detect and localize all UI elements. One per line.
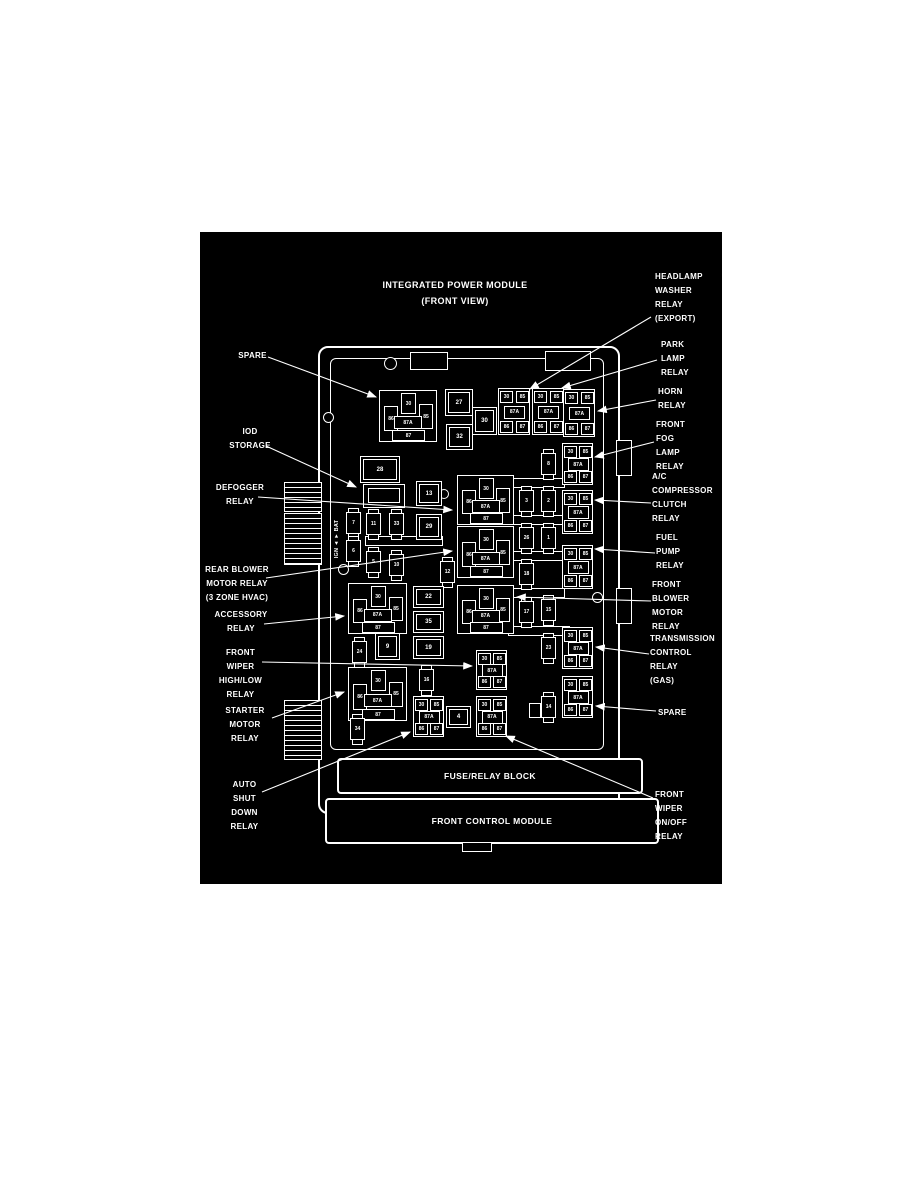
callout-labels: SPAREIODSTORAGEDEFOGGERRELAYREAR BLOWERM… <box>0 0 918 1188</box>
label-line: COMPRESSOR <box>652 484 713 498</box>
label-line: RELAY <box>655 298 703 312</box>
label-ac-compressor-clutch-relay: A/CCOMPRESSORCLUTCHRELAY <box>652 470 713 526</box>
label-line: WASHER <box>655 284 703 298</box>
label-line: MOTOR <box>652 606 689 620</box>
label-line: FOG <box>656 432 685 446</box>
label-line: MOTOR <box>200 718 290 732</box>
label-accessory-relay: ACCESSORYRELAY <box>195 608 287 636</box>
label-line: RELAY <box>202 820 287 834</box>
label-line: PARK <box>661 338 689 352</box>
label-line: A/C <box>652 470 713 484</box>
label-line: RELAY <box>661 366 689 380</box>
label-line: (GAS) <box>650 674 715 688</box>
label-line: FRONT <box>198 646 283 660</box>
label-line: IOD <box>205 425 295 439</box>
label-line: ON/OFF <box>655 816 687 830</box>
label-line: STARTER <box>200 704 290 718</box>
label-defogger-relay: DEFOGGERRELAY <box>195 481 285 509</box>
label-line: RELAY <box>658 399 686 413</box>
label-line: CLUTCH <box>652 498 713 512</box>
label-line: ACCESSORY <box>195 608 287 622</box>
label-line: (EXPORT) <box>655 312 703 326</box>
label-line: SPARE <box>205 349 300 363</box>
label-line: RELAY <box>195 495 285 509</box>
label-front-fog-lamp-relay: FRONTFOGLAMPRELAY <box>656 418 685 474</box>
label-line: SHUT <box>202 792 287 806</box>
label-line: DOWN <box>202 806 287 820</box>
label-front-blower-motor-relay: FRONTBLOWERMOTORRELAY <box>652 578 689 634</box>
label-line: FUEL <box>656 531 684 545</box>
label-line: RELAY <box>195 622 287 636</box>
label-line: WIPER <box>655 802 687 816</box>
label-line: LAMP <box>661 352 689 366</box>
label-line: FRONT <box>656 418 685 432</box>
label-line: FRONT <box>652 578 689 592</box>
label-fuel-pump-relay: FUELPUMPRELAY <box>656 531 684 573</box>
label-auto-shut-down-relay: AUTOSHUTDOWNRELAY <box>202 778 287 834</box>
label-line: RELAY <box>200 732 290 746</box>
label-park-lamp-relay: PARKLAMPRELAY <box>661 338 689 380</box>
label-starter-motor-relay: STARTERMOTORRELAY <box>200 704 290 746</box>
label-iod-storage: IODSTORAGE <box>205 425 295 453</box>
label-front-wiper-on-off-relay: FRONTWIPERON/OFFRELAY <box>655 788 687 844</box>
label-front-wiper-high-low-relay: FRONTWIPERHIGH/LOWRELAY <box>198 646 283 702</box>
label-line: HORN <box>658 385 686 399</box>
label-line: MOTOR RELAY <box>188 577 286 591</box>
label-line: LAMP <box>656 446 685 460</box>
label-line: PUMP <box>656 545 684 559</box>
label-line: REAR BLOWER <box>188 563 286 577</box>
label-line: STORAGE <box>205 439 295 453</box>
label-line: RELAY <box>652 512 713 526</box>
label-line: RELAY <box>655 830 687 844</box>
label-line: HEADLAMP <box>655 270 703 284</box>
page: INTEGRATED POWER MODULE (FRONT VIEW) <box>0 0 918 1188</box>
label-line: HIGH/LOW <box>198 674 283 688</box>
label-spare-right: SPARE <box>658 706 686 720</box>
label-transmission-control-relay: TRANSMISSIONCONTROLRELAY(GAS) <box>650 632 715 688</box>
label-rear-blower-motor-relay: REAR BLOWERMOTOR RELAY(3 ZONE HVAC) <box>188 563 286 605</box>
label-line: TRANSMISSION <box>650 632 715 646</box>
label-line: RELAY <box>656 559 684 573</box>
label-line: AUTO <box>202 778 287 792</box>
label-headlamp-washer-relay: HEADLAMPWASHERRELAY(EXPORT) <box>655 270 703 326</box>
label-line: (3 ZONE HVAC) <box>188 591 286 605</box>
label-line: SPARE <box>658 706 686 720</box>
label-line: DEFOGGER <box>195 481 285 495</box>
label-line: RELAY <box>650 660 715 674</box>
label-line: CONTROL <box>650 646 715 660</box>
label-line: FRONT <box>655 788 687 802</box>
label-horn-relay: HORNRELAY <box>658 385 686 413</box>
label-spare-left: SPARE <box>205 349 300 363</box>
label-line: RELAY <box>198 688 283 702</box>
label-line: BLOWER <box>652 592 689 606</box>
label-line: WIPER <box>198 660 283 674</box>
